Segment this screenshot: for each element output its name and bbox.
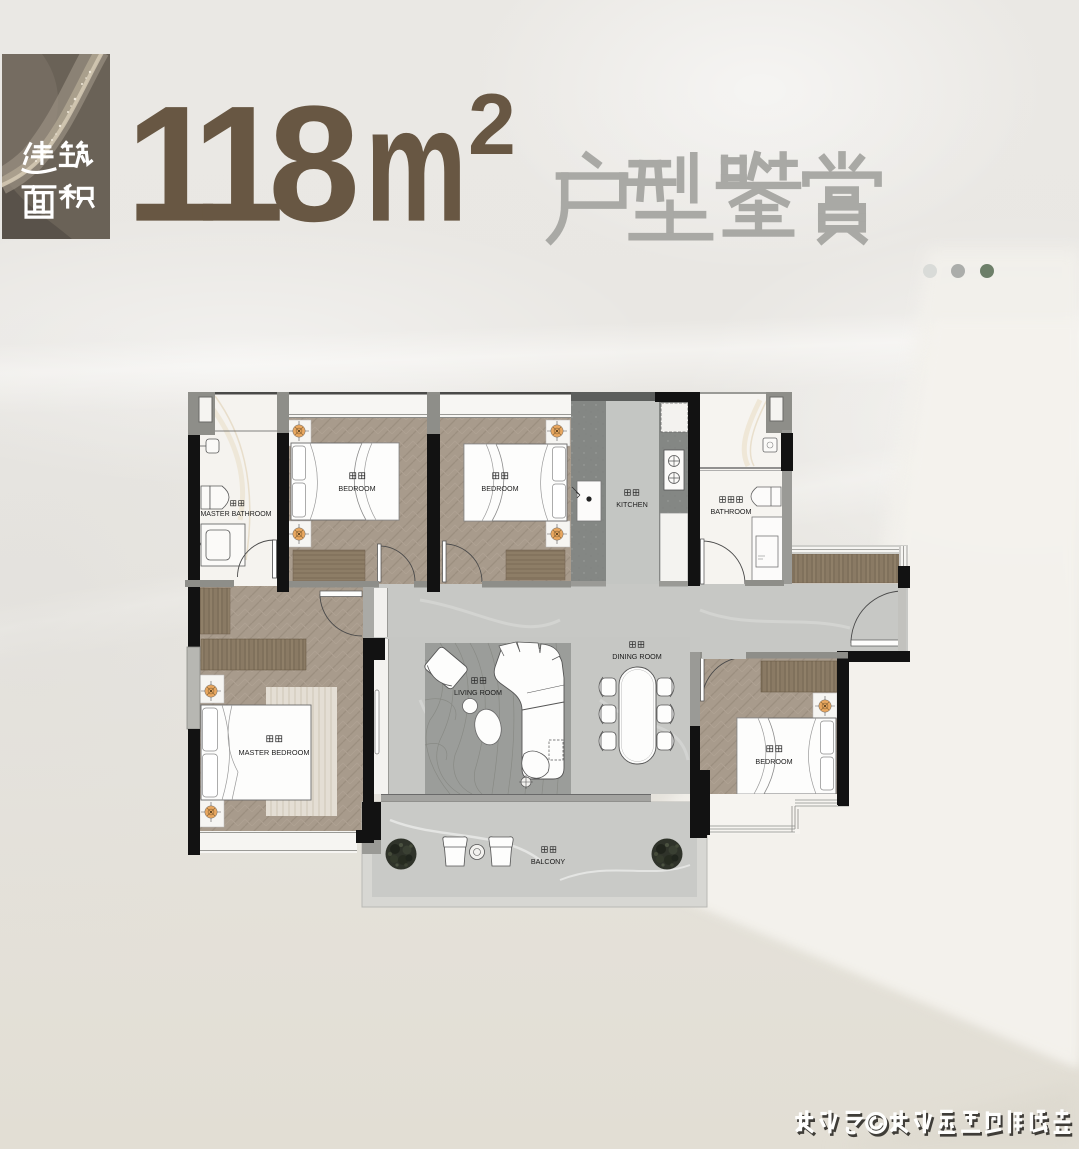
- svg-text:DINING ROOM: DINING ROOM: [612, 652, 662, 661]
- svg-text:BEDROOM: BEDROOM: [481, 484, 518, 493]
- svg-text:KITCHEN: KITCHEN: [616, 500, 648, 509]
- svg-text:BATHROOM: BATHROOM: [711, 507, 752, 516]
- svg-text:BALCONY: BALCONY: [531, 857, 566, 866]
- svg-text:MASTER BEDROOM: MASTER BEDROOM: [238, 748, 309, 757]
- svg-text:BEDROOM: BEDROOM: [755, 757, 792, 766]
- svg-text:BEDROOM: BEDROOM: [338, 484, 375, 493]
- svg-text:MASTER BATHROOM: MASTER BATHROOM: [200, 511, 271, 518]
- svg-text:LIVING ROOM: LIVING ROOM: [454, 688, 502, 697]
